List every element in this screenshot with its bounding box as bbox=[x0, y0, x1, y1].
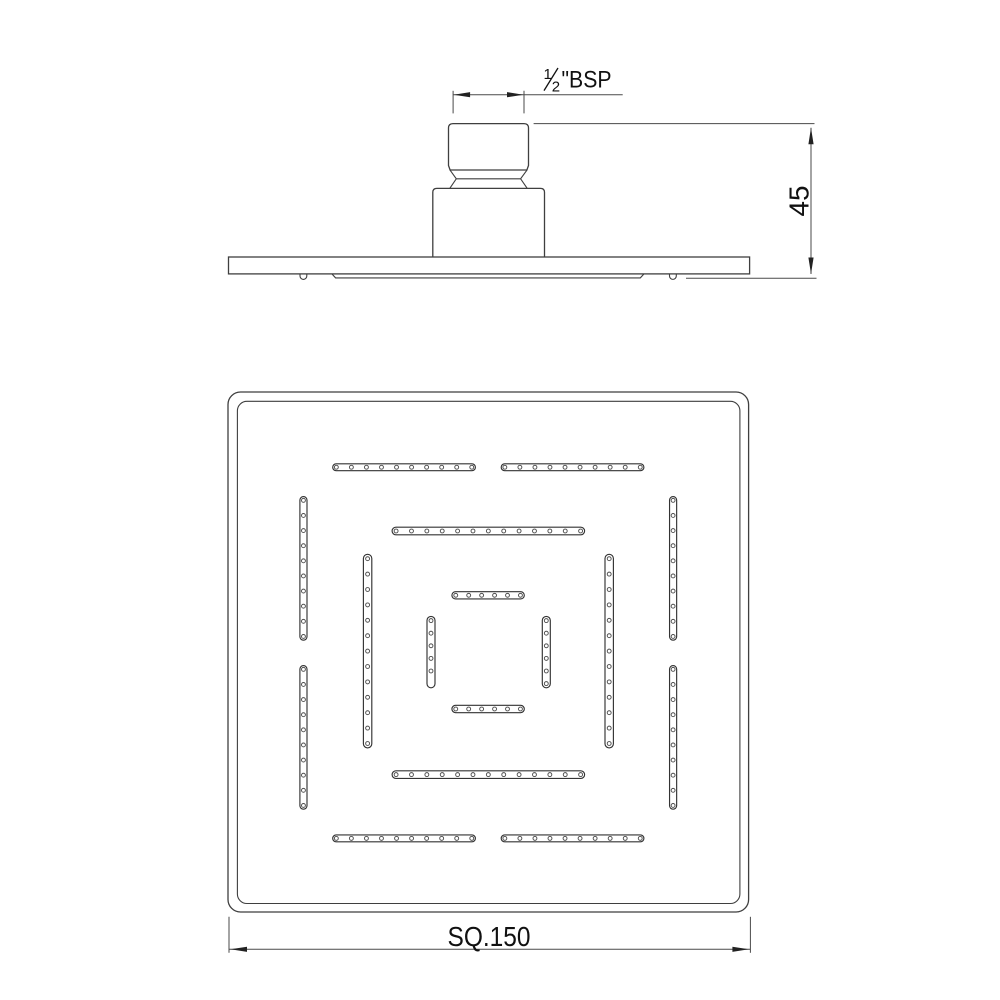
svg-text:2: 2 bbox=[552, 79, 560, 96]
svg-text:SQ.150: SQ.150 bbox=[448, 921, 531, 952]
svg-text:45: 45 bbox=[784, 186, 815, 217]
svg-text:"BSP: "BSP bbox=[562, 66, 612, 93]
